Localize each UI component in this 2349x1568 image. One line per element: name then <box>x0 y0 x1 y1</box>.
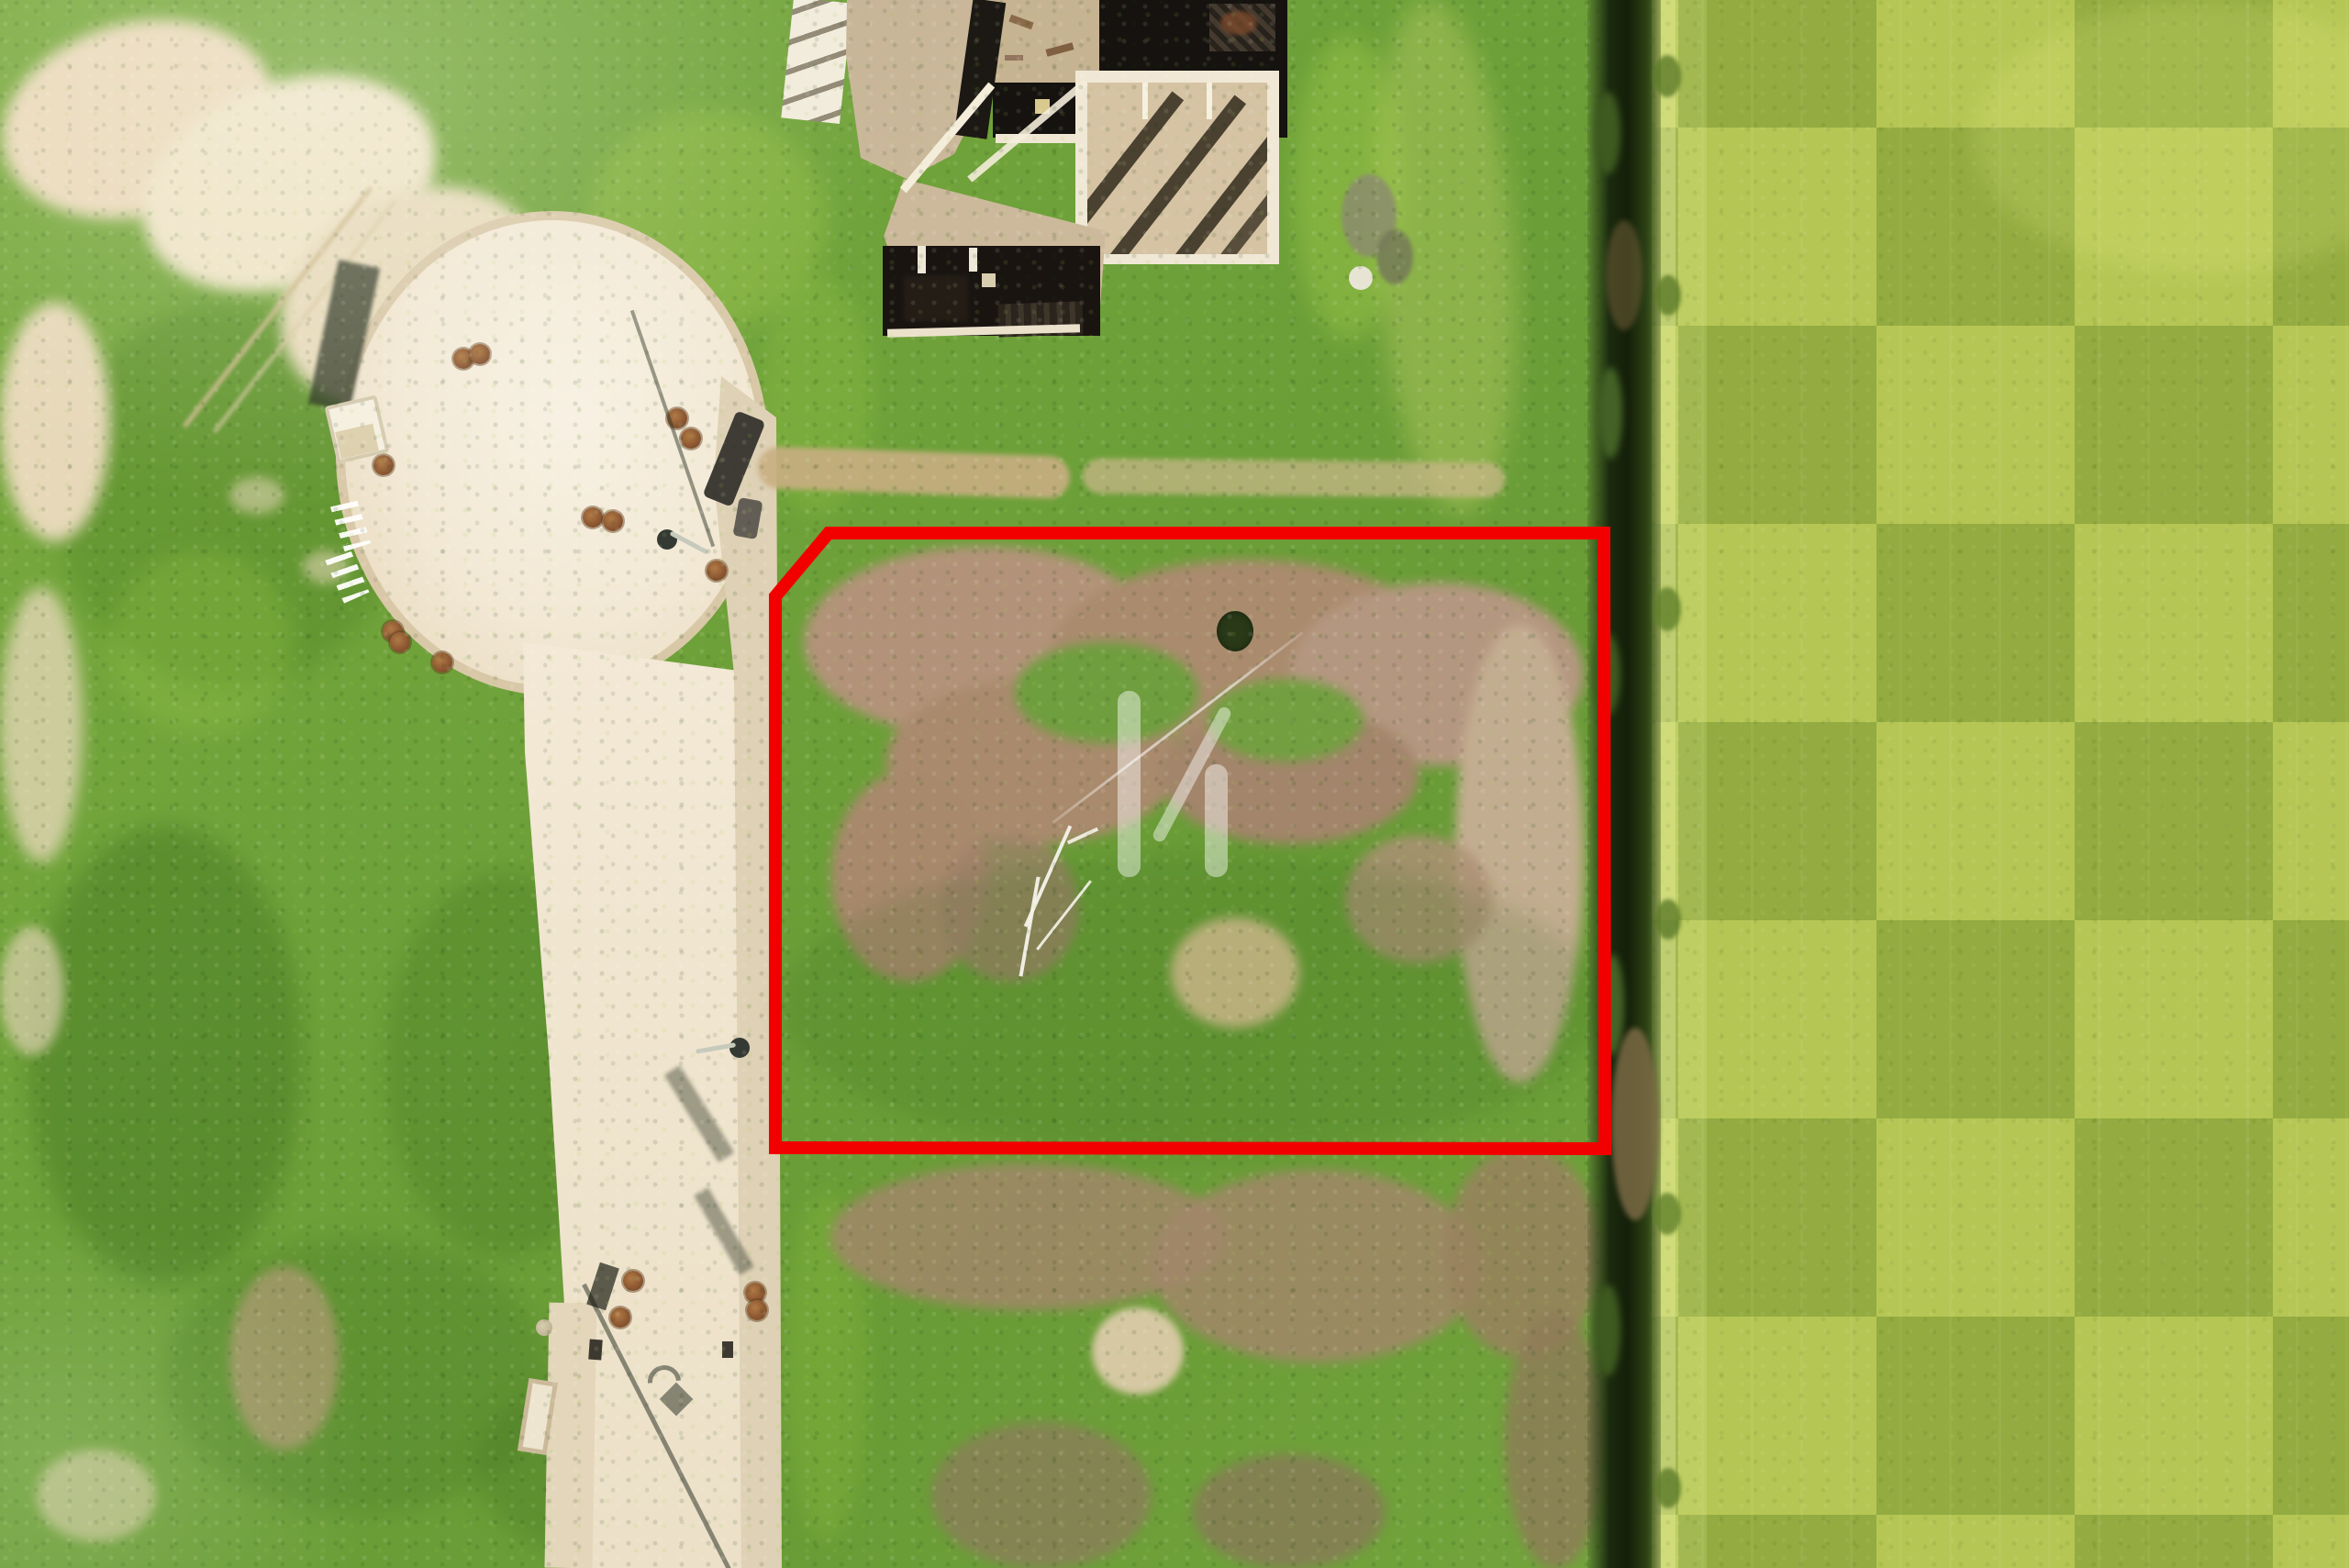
watermark-bar-left <box>1118 691 1141 877</box>
plot-boundary-outline <box>775 533 1605 1149</box>
watermark-bar-right <box>1205 764 1228 877</box>
plot-boundary-layer <box>0 0 2349 1568</box>
aerial-photo-scene <box>0 0 2349 1568</box>
